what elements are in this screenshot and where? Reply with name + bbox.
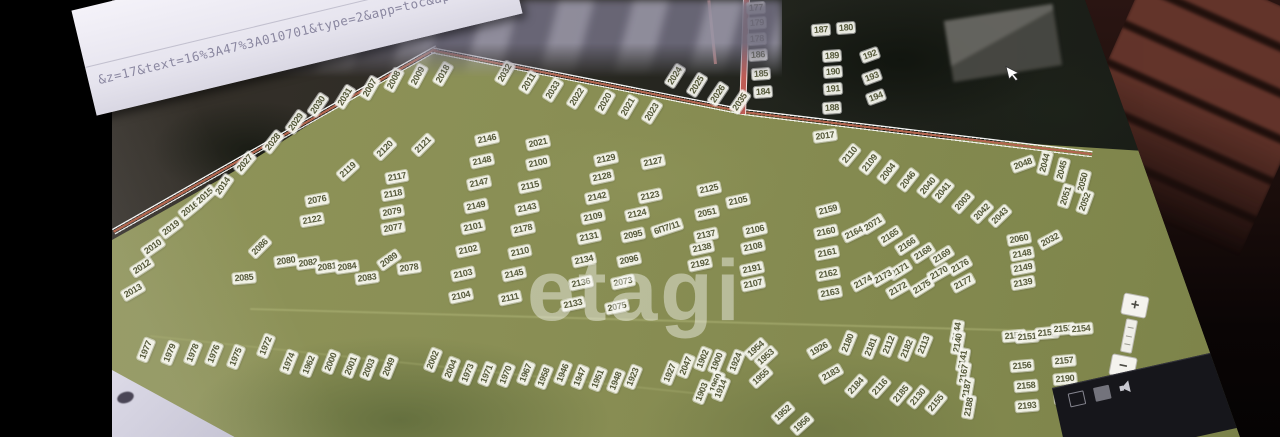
plot-label: 2156 bbox=[1010, 360, 1034, 373]
etagi-watermark: etagi bbox=[527, 248, 743, 334]
speaker-icon[interactable] bbox=[1118, 379, 1136, 395]
plot-label: 184 bbox=[754, 86, 773, 98]
zoom-slider[interactable] bbox=[1120, 318, 1138, 354]
plot-label: 190 bbox=[824, 66, 843, 78]
plot-label: 187 bbox=[812, 24, 831, 36]
plot-label: 2154 bbox=[1069, 323, 1093, 336]
plot-label: 2085 bbox=[232, 272, 256, 285]
paper-corner-dot bbox=[116, 390, 136, 406]
plot-label: 2193 bbox=[1015, 400, 1039, 413]
photo-of-monitor: 1771791781861851841871891901911881801921… bbox=[0, 0, 1280, 437]
plot-label: 189 bbox=[823, 50, 842, 62]
plot-label: 191 bbox=[824, 83, 843, 95]
plot-label: 2158 bbox=[1014, 380, 1038, 393]
plot-label: 180 bbox=[837, 22, 856, 34]
plot-label: 188 bbox=[823, 102, 842, 114]
zoom-in-button[interactable]: + bbox=[1120, 292, 1150, 319]
plot-label: 2157 bbox=[1052, 355, 1076, 368]
app-icon[interactable] bbox=[1093, 385, 1112, 402]
window-icon[interactable] bbox=[1068, 390, 1087, 407]
